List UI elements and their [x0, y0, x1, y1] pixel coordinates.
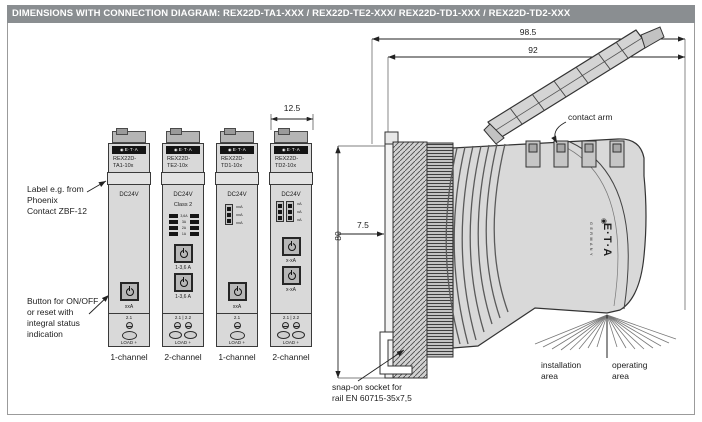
onoff-button — [174, 273, 193, 292]
dip-label: 2A — [178, 226, 190, 230]
wire-openings — [109, 331, 149, 340]
wire-opening-icon — [184, 331, 197, 339]
load-label: LOAD + — [109, 340, 149, 345]
din-clip — [220, 131, 254, 143]
onoff-button — [282, 266, 301, 285]
wire-openings — [271, 331, 311, 339]
onoff-button — [228, 282, 247, 301]
module-front-view-td2: ◉E·T·A REX22D- TD2-10x DC24V xA xA xA x-… — [270, 131, 312, 366]
dip-switch — [190, 226, 199, 230]
load-label: LOAD + — [217, 340, 257, 345]
power-icon — [234, 288, 242, 296]
module-body: ◉E·T·A REX22D- TE2-10x DC24V Class 2 3,6… — [162, 143, 204, 347]
module-body: ◉E·T·A REX22D- TA1-10x DC24V xxA 2.1 LOA… — [108, 143, 150, 347]
model-label: REX22D- TA1-10x — [113, 156, 147, 169]
screw-icon — [293, 322, 300, 329]
dip-switch — [278, 216, 282, 220]
dip-switch — [169, 232, 178, 236]
model-label: REX22D- TD1-10x — [221, 156, 255, 169]
dip-switch — [227, 207, 231, 211]
terminal-number: 2.1 — [217, 315, 257, 320]
screw-terminals — [109, 322, 149, 329]
voltage-label: DC24V — [163, 192, 203, 198]
rating-label: xxA — [217, 304, 257, 310]
dip-label: xA — [297, 208, 302, 216]
dip-switch — [169, 226, 178, 230]
module-body: ◉E·T·A REX22D- TD2-10x DC24V xA xA xA x-… — [270, 143, 312, 347]
screw-terminals — [163, 322, 203, 329]
din-clip — [166, 131, 200, 143]
brand-label: E·T·A — [287, 147, 300, 152]
rating-label: xxA — [109, 304, 149, 310]
marking-label-strip — [269, 172, 313, 185]
channel-caption: 2-channel — [156, 352, 210, 362]
module-front-view-ta1: ◉E·T·A REX22D- TA1-10x DC24V xxA 2.1 LOA… — [108, 131, 150, 366]
model-label: REX22D- TD2-10x — [275, 156, 309, 169]
onoff-button — [120, 282, 139, 301]
terminal-number: 2.1 | 2.2 — [163, 315, 203, 320]
dip-switch — [190, 220, 199, 224]
model-line2: TA1-10x — [113, 163, 147, 170]
selector-range-label: 1-3,6 A — [163, 265, 203, 271]
eta-logo-icon: ◉ — [120, 147, 124, 152]
dip-switch — [169, 214, 178, 218]
dip-switch — [190, 214, 199, 218]
screw-icon — [282, 322, 289, 329]
terminal-section: 2.1 | 2.2 LOAD + — [271, 313, 311, 346]
din-clip — [112, 131, 146, 143]
model-line2: TE2-10x — [167, 163, 201, 170]
module-front-view-te2: ◉E·T·A REX22D- TE2-10x DC24V Class 2 3,6… — [162, 131, 204, 366]
screw-icon — [234, 322, 241, 329]
terminal-number: 2.1 — [109, 315, 149, 320]
channel-caption: 2-channel — [264, 352, 318, 362]
dip-switch — [190, 232, 199, 236]
wire-opening-icon — [169, 331, 182, 339]
dip-switch — [227, 219, 231, 223]
screw-terminals — [271, 322, 311, 329]
din-clip — [274, 131, 308, 143]
dip-switch-block — [225, 204, 233, 225]
dip-switch — [288, 210, 292, 214]
dip-label: xxA — [236, 219, 243, 227]
dip-label: xxA — [236, 203, 243, 211]
model-line2: TD2-10x — [275, 163, 309, 170]
power-icon — [288, 272, 296, 280]
current-selector — [282, 237, 301, 256]
eta-logo: ◉E·T·A — [112, 146, 146, 154]
section-header: DIMENSIONS WITH CONNECTION DIAGRAM: REX2… — [7, 5, 695, 23]
model-line2: TD1-10x — [221, 163, 255, 170]
load-label: LOAD + — [271, 340, 311, 345]
wire-opening-icon — [122, 331, 137, 340]
dip-switch — [288, 216, 292, 220]
eta-logo-icon: ◉ — [282, 147, 286, 152]
wire-opening-icon — [230, 331, 245, 340]
power-icon — [180, 279, 188, 287]
selector-dial-icon — [180, 250, 188, 258]
wire-openings — [163, 331, 203, 339]
wire-opening-icon — [292, 331, 305, 339]
voltage-label: DC24V — [217, 192, 257, 198]
terminal-section: 2.1 | 2.2 LOAD + — [163, 313, 203, 346]
current-selector — [174, 244, 193, 263]
rating-label: x-xA — [271, 287, 311, 293]
dip-switch-block — [276, 201, 284, 222]
button-annotation: Button for ON/OFF or reset with integral… — [27, 296, 98, 340]
dip-switch — [278, 210, 282, 214]
power-icon — [126, 288, 134, 296]
brand-label: E·T·A — [179, 147, 192, 152]
dip-label: xA — [297, 200, 302, 208]
class-label: Class 2 — [163, 202, 203, 208]
marking-label-strip — [161, 172, 205, 185]
voltage-label: DC24V — [271, 192, 311, 198]
selector-range-label: x-xA — [271, 258, 311, 264]
terminal-section: 2.1 LOAD + — [217, 313, 257, 346]
dip-switch — [278, 204, 282, 208]
terminal-number: 2.1 | 2.2 — [271, 315, 311, 320]
eta-logo: ◉E·T·A — [166, 146, 200, 154]
screw-icon — [126, 322, 133, 329]
dip-label: xxA — [236, 211, 243, 219]
dip-switch-block — [286, 201, 294, 222]
eta-logo-icon: ◉ — [228, 147, 232, 152]
dip-labels: xA xA xA — [297, 200, 302, 224]
module-front-view-td1: ◉E·T·A REX22D- TD1-10x DC24V xxA xxA xxA… — [216, 131, 258, 366]
voltage-label: DC24V — [109, 192, 149, 198]
eta-logo: ◉E·T·A — [274, 146, 308, 154]
eta-logo: ◉E·T·A — [220, 146, 254, 154]
screw-icon — [174, 322, 181, 329]
screw-terminals — [217, 322, 257, 329]
dip-switch — [288, 204, 292, 208]
dip-switch — [169, 220, 178, 224]
rating-label: 1-3,6 A — [163, 294, 203, 300]
marking-label-strip — [215, 172, 259, 185]
dip-labels: xxA xxA xxA — [236, 203, 243, 227]
datasheet-diagram-page: DIMENSIONS WITH CONNECTION DIAGRAM: REX2… — [0, 0, 702, 422]
brand-label: E·T·A — [233, 147, 246, 152]
wire-openings — [217, 331, 257, 340]
load-label: LOAD + — [163, 340, 203, 345]
wire-opening-icon — [277, 331, 290, 339]
eta-logo-icon: ◉ — [174, 147, 178, 152]
selector-dial-icon — [288, 243, 296, 251]
dip-label: 3A — [178, 220, 190, 224]
screw-icon — [185, 322, 192, 329]
marking-label-strip — [107, 172, 151, 185]
channel-caption: 1-channel — [102, 352, 156, 362]
terminal-section: 2.1 LOAD + — [109, 313, 149, 346]
dip-switch — [227, 213, 231, 217]
dip-label: 3,6A — [178, 214, 190, 218]
module-body: ◉E·T·A REX22D- TD1-10x DC24V xxA xxA xxA… — [216, 143, 258, 347]
dip-label: xA — [297, 216, 302, 224]
dip-switch-block: 3,6A 3A 2A 1A — [169, 214, 199, 236]
dip-label: 1A — [178, 232, 190, 236]
channel-caption: 1-channel — [210, 352, 264, 362]
model-label: REX22D- TE2-10x — [167, 156, 201, 169]
brand-label: E·T·A — [125, 147, 138, 152]
label-annotation: Label e.g. from Phoenix Contact ZBF-12 — [27, 184, 87, 217]
